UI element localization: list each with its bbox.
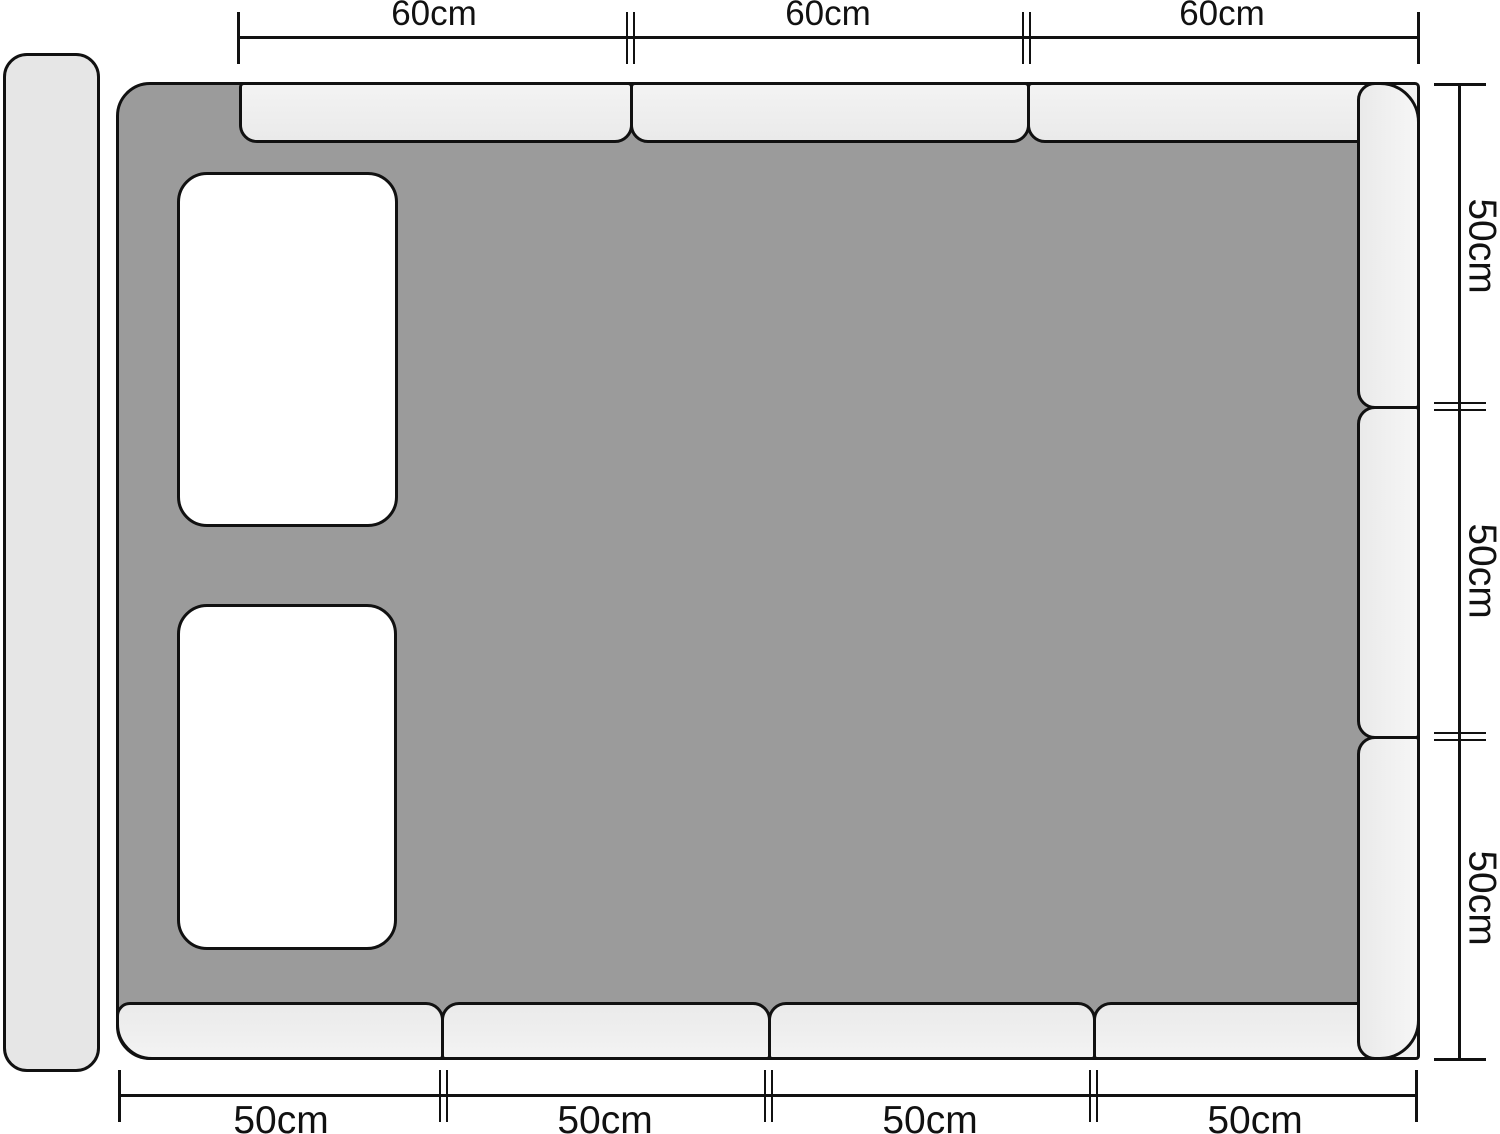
tick-top-mid-2	[1022, 12, 1031, 64]
tick-right-end-bottom	[1434, 1058, 1486, 1061]
dim-label-bottom-2: 50cm	[557, 1101, 652, 1134]
bumper-bottom-2	[441, 1002, 771, 1060]
bumper-right-3	[1357, 736, 1420, 1060]
tick-bottom-mid-1	[439, 1070, 448, 1122]
tick-bottom-mid-3	[1089, 1070, 1098, 1122]
tick-top-end-right	[1417, 12, 1420, 64]
tick-right-mid-2	[1434, 732, 1486, 741]
dim-label-right-3: 50cm	[1463, 850, 1500, 945]
dim-label-top-1: 60cm	[391, 0, 477, 31]
tick-bottom-end-left	[118, 1070, 121, 1122]
dim-label-right-1: 50cm	[1463, 198, 1500, 293]
tick-bottom-end-right	[1415, 1070, 1418, 1122]
dim-label-bottom-3: 50cm	[882, 1101, 977, 1134]
dim-label-right-2: 50cm	[1463, 523, 1500, 618]
bumper-right-1	[1357, 82, 1420, 409]
bumper-bottom-3	[768, 1002, 1096, 1060]
tick-bottom-mid-2	[764, 1070, 773, 1122]
tick-top-end-left	[237, 12, 240, 64]
dim-label-top-3: 60cm	[1179, 0, 1265, 31]
bumper-top-2	[630, 82, 1030, 143]
bumper-bottom-1	[116, 1002, 444, 1060]
dimension-line-top	[239, 36, 1419, 39]
bumper-right-2	[1357, 406, 1420, 739]
tick-right-end-top	[1434, 83, 1486, 86]
tick-right-mid-1	[1434, 402, 1486, 411]
dim-label-top-2: 60cm	[785, 0, 871, 31]
pillow-top	[177, 172, 398, 527]
bed-bumper-dimension-diagram: 60cm 60cm 60cm 50cm 50cm 50cm 50cm 50cm …	[0, 0, 1500, 1134]
pillow-bottom	[177, 604, 397, 950]
tick-top-mid-1	[626, 12, 635, 64]
dim-label-bottom-4: 50cm	[1207, 1101, 1302, 1134]
dim-label-bottom-1: 50cm	[233, 1101, 328, 1134]
headboard	[3, 53, 100, 1072]
bumper-top-1	[239, 82, 633, 143]
